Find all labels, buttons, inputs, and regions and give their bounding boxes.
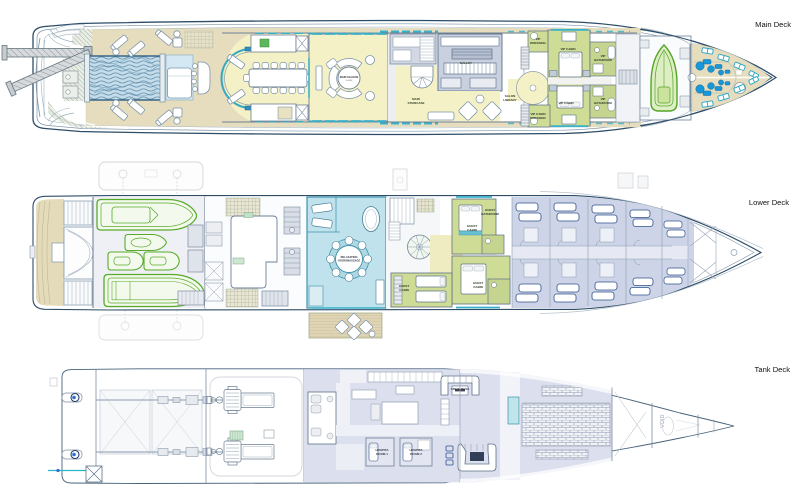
svg-text:VIP CABIN: VIP CABIN xyxy=(558,101,573,105)
svg-text:Tank Deck: Tank Deck xyxy=(755,365,791,374)
svg-text:STAIRCASE: STAIRCASE xyxy=(407,101,424,105)
svg-text:LIBRARY: LIBRARY xyxy=(503,98,516,102)
svg-text:HYDROMASSAGE: HYDROMASSAGE xyxy=(338,259,361,263)
svg-text:LOUNGE: LOUNGE xyxy=(471,457,484,461)
svg-text:D=350: D=350 xyxy=(346,80,353,82)
svg-text:ROOM 2: ROOM 2 xyxy=(410,452,422,456)
svg-text:Lower Deck: Lower Deck xyxy=(749,198,789,207)
svg-text:Main Deck: Main Deck xyxy=(755,20,791,29)
svg-text:RELAXATION: RELAXATION xyxy=(341,255,358,259)
svg-text:CREW MESS: CREW MESS xyxy=(451,387,470,391)
svg-text:BATHROOM: BATHROOM xyxy=(481,212,499,216)
svg-text:BATHROOM: BATHROOM xyxy=(594,58,612,62)
svg-text:MAIN SALOON: MAIN SALOON xyxy=(340,75,359,79)
svg-text:DRESSING: DRESSING xyxy=(530,41,546,45)
svg-text:CABIN: CABIN xyxy=(473,285,483,289)
svg-text:BATHROOM: BATHROOM xyxy=(594,101,612,105)
svg-text:DRESSING: DRESSING xyxy=(530,116,546,120)
svg-text:VIP CABIN: VIP CABIN xyxy=(560,47,575,51)
svg-text:ROOM 1: ROOM 1 xyxy=(376,452,388,456)
svg-text:GALLEY: GALLEY xyxy=(460,61,472,65)
svg-text:CABIN: CABIN xyxy=(399,288,409,292)
svg-text:CABIN: CABIN xyxy=(467,228,477,232)
